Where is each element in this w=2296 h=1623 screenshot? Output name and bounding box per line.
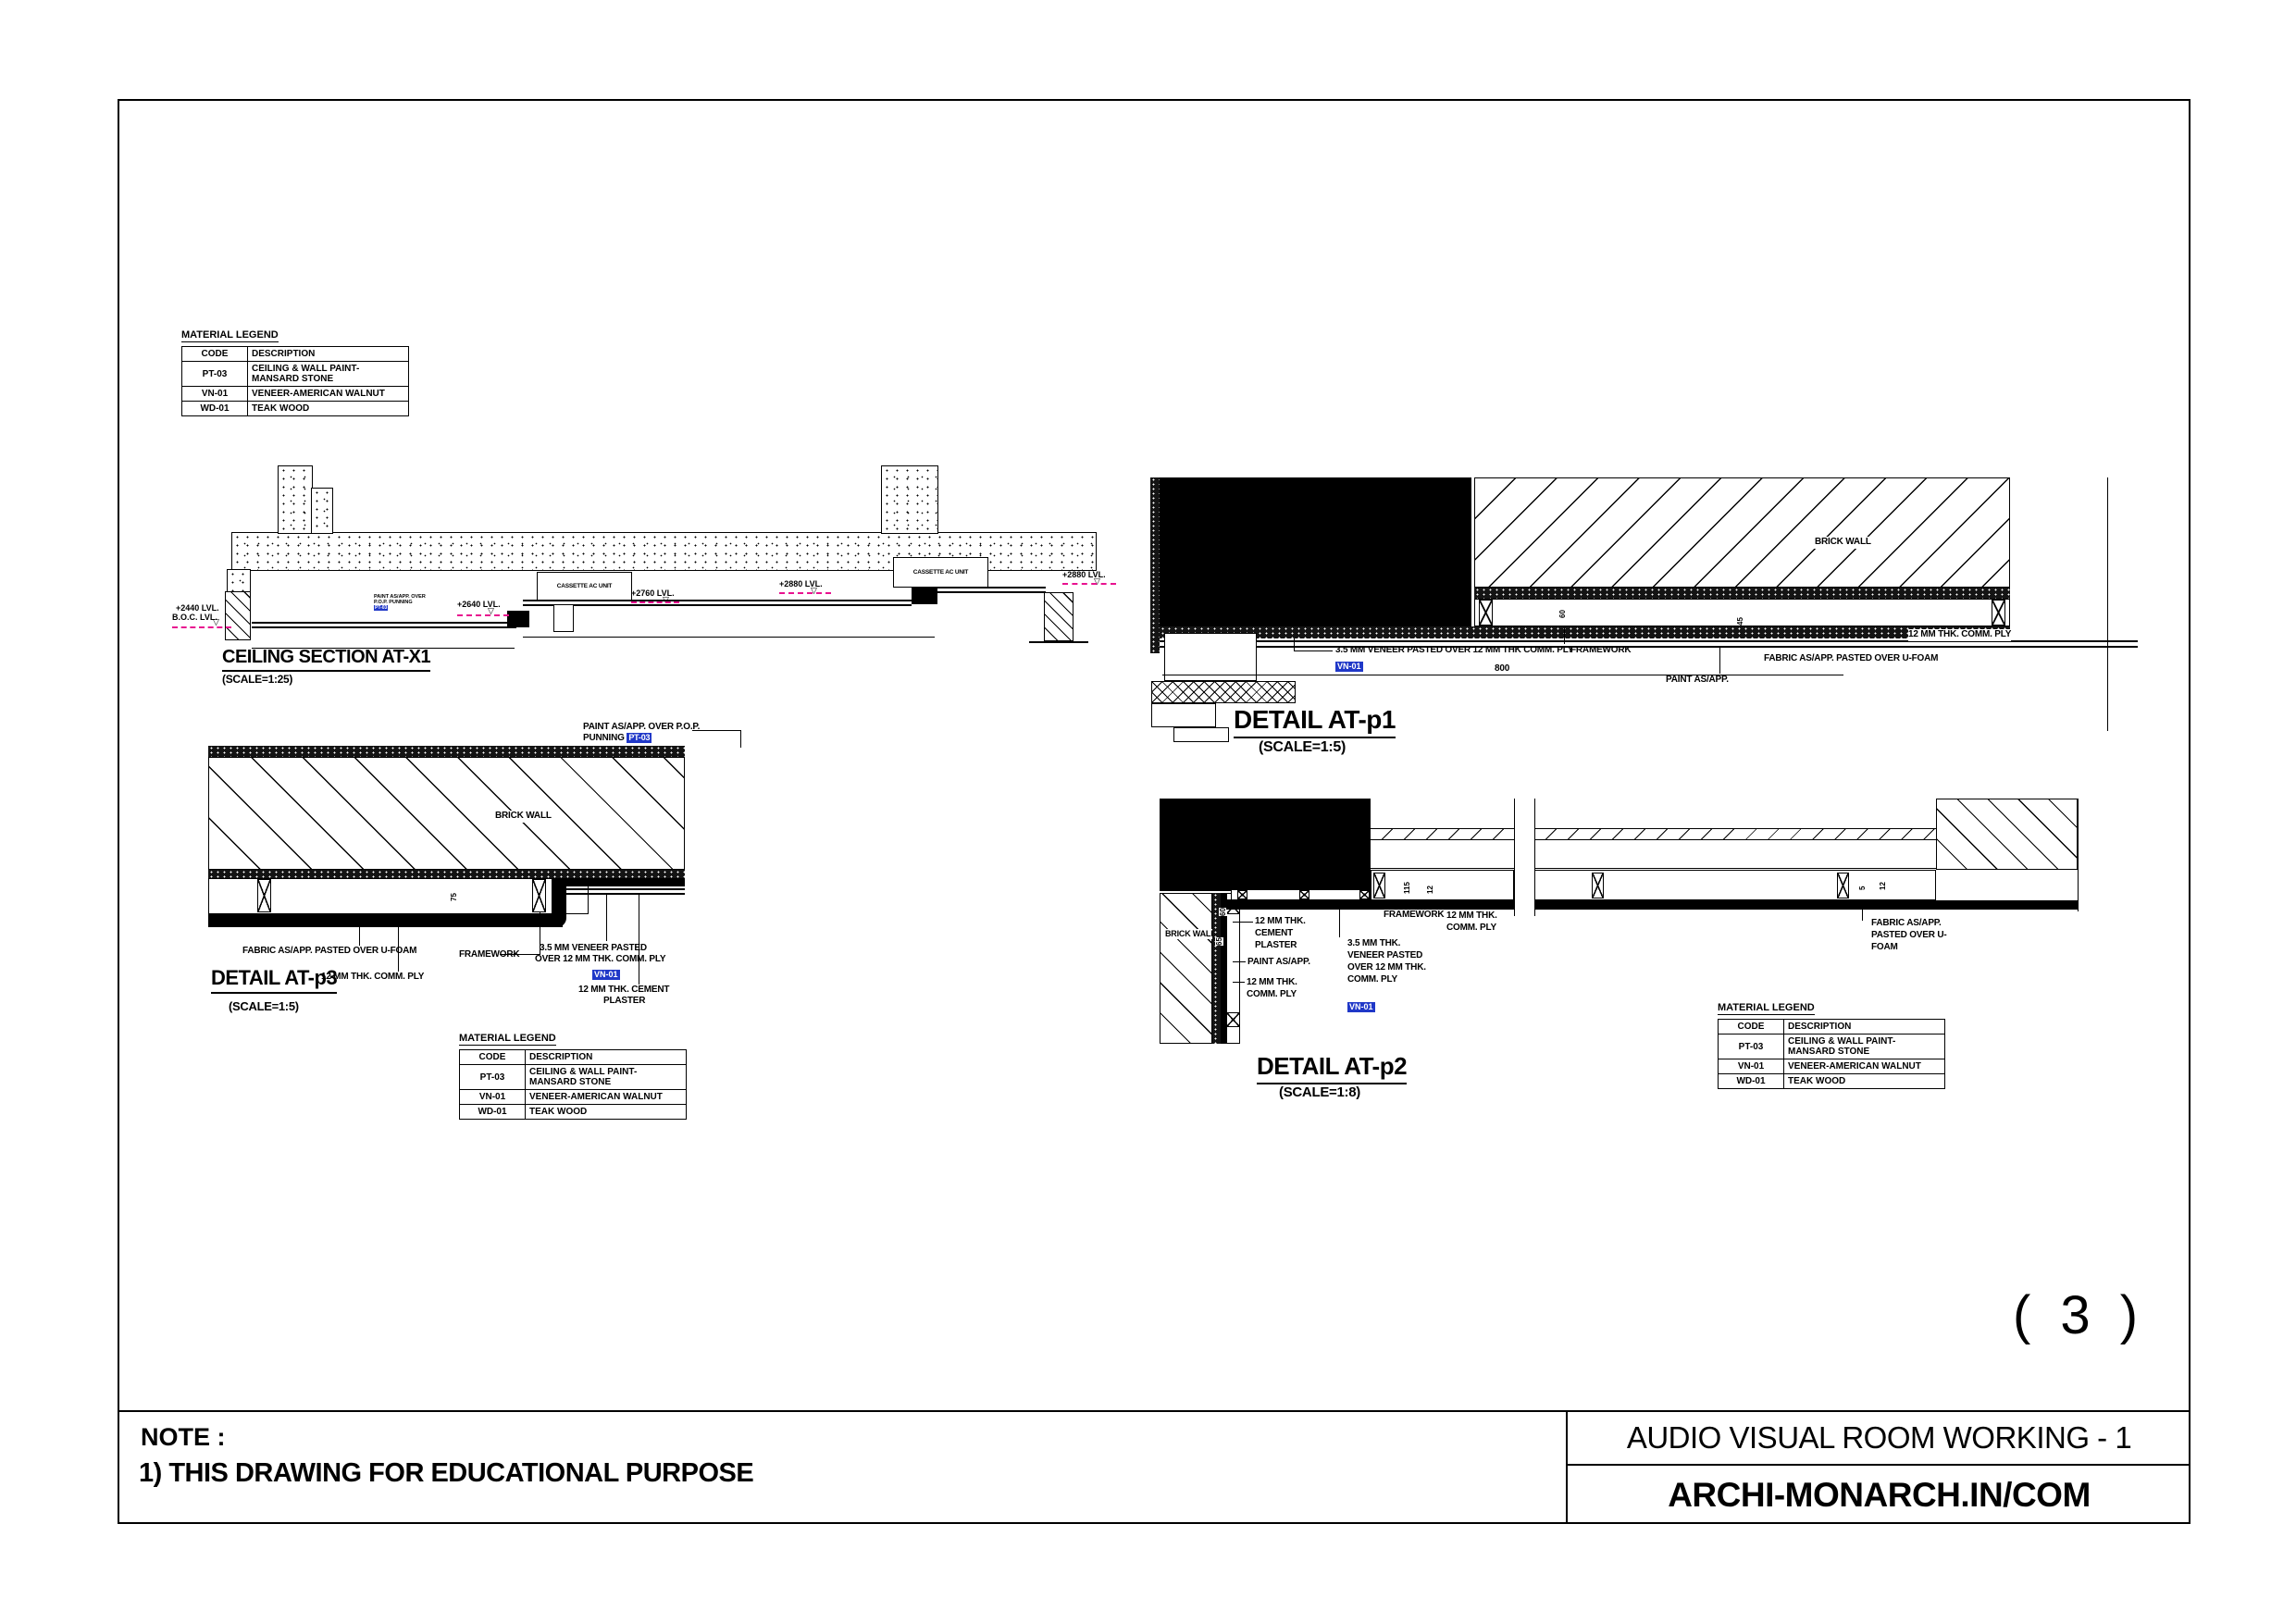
framework-blocking	[1837, 873, 1849, 898]
plaster-edge-strip	[1150, 477, 1160, 653]
cassette-ac-unit-label: CASSETTE AC UNIT	[913, 569, 968, 576]
ceiling-section-title: CEILING SECTION AT-X1	[222, 647, 430, 672]
brick-wall-label: BRICK WALL	[1164, 929, 1217, 939]
level-dash-line	[172, 626, 231, 628]
fabric-label: FABRIC AS/APP. PASTED OVER U-FOAM	[1764, 653, 1938, 665]
veneer-tag: VN-01	[1335, 657, 1363, 674]
detail-p2-title: DETAIL AT-p2	[1257, 1052, 1407, 1084]
concrete-stub-left-step	[311, 488, 333, 534]
dim-65: 65	[1215, 937, 1223, 946]
veneer-band	[566, 878, 685, 886]
dim-5: 5	[1858, 886, 1867, 890]
jamb-step	[1151, 703, 1216, 727]
leader-line	[606, 895, 607, 941]
detail-p2-scale: (SCALE=1:8)	[1279, 1084, 1360, 1100]
legend-title: MATERIAL LEGEND	[181, 329, 279, 342]
material-tag-vn01: VN-01	[1347, 1002, 1375, 1012]
leader-line	[1233, 982, 1245, 983]
framework-blocking	[532, 879, 546, 912]
cassette-ac-unit-2: CASSETTE AC UNIT	[893, 557, 988, 588]
framework-blocking	[1479, 600, 1493, 626]
legend-col-code: CODE	[460, 1050, 526, 1065]
fabric-band	[1160, 626, 2010, 638]
leader-line	[1294, 638, 1295, 651]
ceiling-band	[1534, 900, 2078, 910]
brick-wall-hatch-right	[1936, 799, 2078, 870]
gap-row-line	[1371, 868, 1514, 869]
framework-blocking	[1237, 890, 1247, 899]
slab-edge-hatch-band	[1534, 828, 1936, 840]
legend-cell: VN-01	[1719, 1059, 1784, 1074]
framework-blocking	[1992, 600, 2005, 626]
framework-blocking	[1299, 890, 1309, 899]
drawing-sheet: MATERIAL LEGEND CODE DESCRIPTION PT-03 C…	[0, 0, 2296, 1623]
column-right	[1044, 592, 1074, 641]
note-line-1: 1) THIS DRAWING FOR EDUCATIONAL PURPOSE	[139, 1458, 753, 1489]
plaster-band	[208, 870, 685, 878]
paint-label: PAINT AS/APP.	[1666, 675, 1729, 687]
legend-table: CODE DESCRIPTION PT-03 CEILING & WALL PA…	[181, 346, 409, 416]
cassette-ac-unit-1: CASSETTE AC UNIT	[537, 572, 632, 601]
ground-line	[1029, 641, 1088, 643]
dim-800: 800	[1495, 663, 1509, 675]
fabric-wrap-band	[208, 914, 563, 927]
paint-note-text: PUNNING	[583, 733, 625, 743]
legend-table: CODE DESCRIPTION PT-03 CEILING & WALL PA…	[1718, 1019, 1945, 1089]
legend-col-code: CODE	[182, 347, 248, 362]
cement-label-line1: 12 MM THK. CEMENT	[578, 985, 669, 997]
leader-line	[639, 895, 639, 985]
ceiling-pendant-box	[553, 604, 574, 632]
ply-line	[566, 893, 685, 895]
detail-p1-scale: (SCALE=1:5)	[1259, 739, 1346, 756]
dim-12b: 12	[1879, 882, 1887, 890]
cement-label-line2: PLASTER	[603, 996, 645, 1008]
column-left	[225, 591, 251, 640]
leader-line	[1862, 910, 1863, 921]
ply-line	[566, 888, 685, 890]
legend-cell: VENEER-AMERICAN WALNUT	[526, 1090, 687, 1105]
level-boc-label: B.O.C. LVL.	[172, 613, 217, 622]
gap-row-line	[1534, 868, 1936, 869]
ceiling-run1-line	[252, 626, 516, 628]
concrete-stub-right	[881, 465, 938, 534]
framework-blocking	[1592, 873, 1604, 898]
av-wall-black-panel	[1160, 799, 1371, 891]
extension-line	[2107, 477, 2108, 731]
framework-label: FRAMEWORK	[459, 949, 519, 961]
wall-upper-left	[227, 569, 251, 593]
ceiling-step1	[507, 611, 529, 627]
framework-label: FRAMEWORK	[1570, 645, 1631, 657]
paint-label: PAINT AS/APP.	[1247, 957, 1310, 969]
framework-label: FRAMEWORK	[1384, 910, 1444, 922]
veneer-label: 3.5 MM VENEER PASTED OVER 12 MM THK COMM…	[1335, 645, 1573, 657]
level-2440-label: +2440 LVL.	[176, 603, 219, 613]
plaster-band	[1474, 588, 2010, 599]
legend-cell: VN-01	[182, 387, 248, 402]
framework-row	[1371, 870, 1514, 900]
level-dash-line	[631, 601, 679, 603]
leader-line	[1294, 650, 1333, 651]
ply-line	[1160, 646, 2138, 648]
leader-line	[1564, 627, 1565, 644]
fabric-label: FABRIC AS/APP. PASTED OVER U-FOAM	[1871, 917, 1973, 953]
dim-line	[523, 637, 935, 638]
brand-text: ARCHI-MONARCH.IN/COM	[1668, 1476, 2091, 1515]
veneer-tag: VN-01	[592, 965, 620, 982]
title-block-brand: ARCHI-MONARCH.IN/COM	[1568, 1466, 2191, 1524]
material-tag-vn01: VN-01	[592, 970, 620, 980]
dim-12: 12	[1426, 886, 1434, 894]
paint-note-line2: PUNNING PT-03	[583, 733, 652, 745]
level-marker-icon: ▽	[213, 618, 219, 626]
legend-cell: PT-03	[1719, 1035, 1784, 1059]
legend-cell: CEILING & WALL PAINT-MANSARD STONE	[248, 362, 409, 387]
dim-60: 60	[1558, 610, 1567, 618]
jamb-wood-blocking	[1151, 681, 1296, 703]
legend-title: MATERIAL LEGEND	[1718, 1002, 1815, 1015]
leader-line	[740, 730, 741, 748]
edge-line	[2078, 799, 2079, 911]
title-block-project: AUDIO VISUAL ROOM WORKING - 1	[1568, 1412, 2191, 1464]
veneer-label-line1: 3.5 MM VENEER PASTED	[540, 943, 647, 955]
fabric-label: FABRIC AS/APP. PASTED OVER U-FOAM	[242, 946, 416, 958]
level-dash-line	[457, 614, 509, 616]
ceiling-step2	[912, 587, 937, 604]
detail-p3-title: DETAIL AT-p3	[211, 966, 337, 994]
legend-col-desc: DESCRIPTION	[1784, 1020, 1945, 1035]
plaster-band	[208, 746, 685, 757]
ceiling-run2-line	[523, 604, 912, 606]
legend-cell: CEILING & WALL PAINT-MANSARD STONE	[526, 1065, 687, 1090]
legend-cell: TEAK WOOD	[248, 402, 409, 416]
project-title-text: AUDIO VISUAL ROOM WORKING - 1	[1627, 1420, 2131, 1456]
veneer-label: 3.5 MM THK. VENEER PASTED OVER 12 MM THK…	[1347, 937, 1427, 985]
ply-left-label: 12 MM THK. COMM. PLY	[1247, 976, 1319, 1000]
legend-col-desc: DESCRIPTION	[526, 1050, 687, 1065]
legend-cell: PT-03	[460, 1065, 526, 1090]
veneer-tag: VN-01	[1347, 997, 1375, 1014]
jamb-step	[1173, 727, 1229, 742]
legend-cell: CEILING & WALL PAINT-MANSARD STONE	[1784, 1035, 1945, 1059]
break-line	[1534, 799, 1535, 916]
brick-wall-label: BRICK WALL	[1812, 537, 1874, 549]
leader-line	[1719, 648, 1720, 674]
fabric-wrap-corner	[552, 878, 566, 927]
legend-cell: TEAK WOOD	[1784, 1074, 1945, 1089]
tiny-paint-tag: PT-03	[374, 605, 388, 611]
dim-45: 45	[1736, 617, 1744, 626]
leader-line	[1233, 961, 1246, 962]
paint-note-line1: PAINT AS/APP. OVER P.O.P.	[583, 722, 700, 734]
framework-blocking	[1373, 873, 1385, 898]
leader-line	[398, 927, 399, 972]
material-tag-pt03: PT-03	[627, 733, 652, 743]
framework-blocking	[1226, 1012, 1240, 1027]
leader-line	[1440, 902, 1441, 910]
brick-wall-hatch	[1474, 477, 2010, 588]
brick-wall-hatch	[208, 757, 685, 870]
legend-cell: WD-01	[1719, 1074, 1784, 1089]
ply-label: 12 MM THK. COMM. PLY	[1908, 629, 2011, 641]
legend-cell: WD-01	[182, 402, 248, 416]
detail-p1-title: DETAIL AT-p1	[1234, 705, 1396, 738]
ceiling-run3-line	[937, 591, 1046, 593]
material-tag-vn01: VN-01	[1335, 662, 1363, 672]
dim-115: 115	[1403, 882, 1411, 894]
legend-cell: PT-03	[182, 362, 248, 387]
ceiling-run1-line	[252, 622, 516, 624]
cassette-ac-unit-label: CASSETTE AC UNIT	[557, 583, 612, 589]
dim-75: 75	[450, 893, 458, 901]
page-number: ( 3 )	[2013, 1284, 2145, 1346]
brick-wall-hatch-left	[1160, 893, 1212, 1044]
level-dash-line	[1062, 583, 1116, 585]
slab-edge-hatch-band	[1371, 828, 1514, 840]
legend-cell: WD-01	[460, 1105, 526, 1120]
leader-line	[1378, 902, 1379, 910]
legend-cell: VENEER-AMERICAN WALNUT	[248, 387, 409, 402]
legend-table: CODE DESCRIPTION PT-03 CEILING & WALL PA…	[459, 1049, 687, 1120]
veneer-label-line2: OVER 12 MM THK. COMM. PLY	[535, 954, 665, 966]
framework-blocking	[1359, 890, 1370, 899]
cement-label: 12 MM THK. CEMENT PLASTER	[1255, 915, 1336, 951]
break-line	[1514, 799, 1515, 916]
brick-wall-label: BRICK WALL	[492, 811, 554, 823]
leader-line	[359, 927, 360, 946]
detail-p3-scale: (SCALE=1:5)	[229, 999, 299, 1013]
note-heading: NOTE :	[141, 1423, 226, 1452]
av-wall-black-panel	[1160, 477, 1471, 626]
legend-title: MATERIAL LEGEND	[459, 1033, 556, 1046]
legend-cell: VENEER-AMERICAN WALNUT	[1784, 1059, 1945, 1074]
legend-col-desc: DESCRIPTION	[248, 347, 409, 362]
legend-cell: TEAK WOOD	[526, 1105, 687, 1120]
legend-col-code: CODE	[1719, 1020, 1784, 1035]
legend-cell: VN-01	[460, 1090, 526, 1105]
ceiling-band	[1226, 900, 1514, 910]
level-dash-line	[779, 592, 831, 594]
concrete-stub-left	[278, 465, 313, 534]
leader-line	[1233, 922, 1253, 923]
leader-line	[692, 730, 740, 731]
ceiling-section-scale: (SCALE=1:25)	[222, 673, 292, 686]
ply-right-label: 12 MM THK. COMM. PLY	[1446, 910, 1519, 934]
leader-line	[1339, 910, 1340, 937]
framework-blocking	[257, 879, 271, 912]
